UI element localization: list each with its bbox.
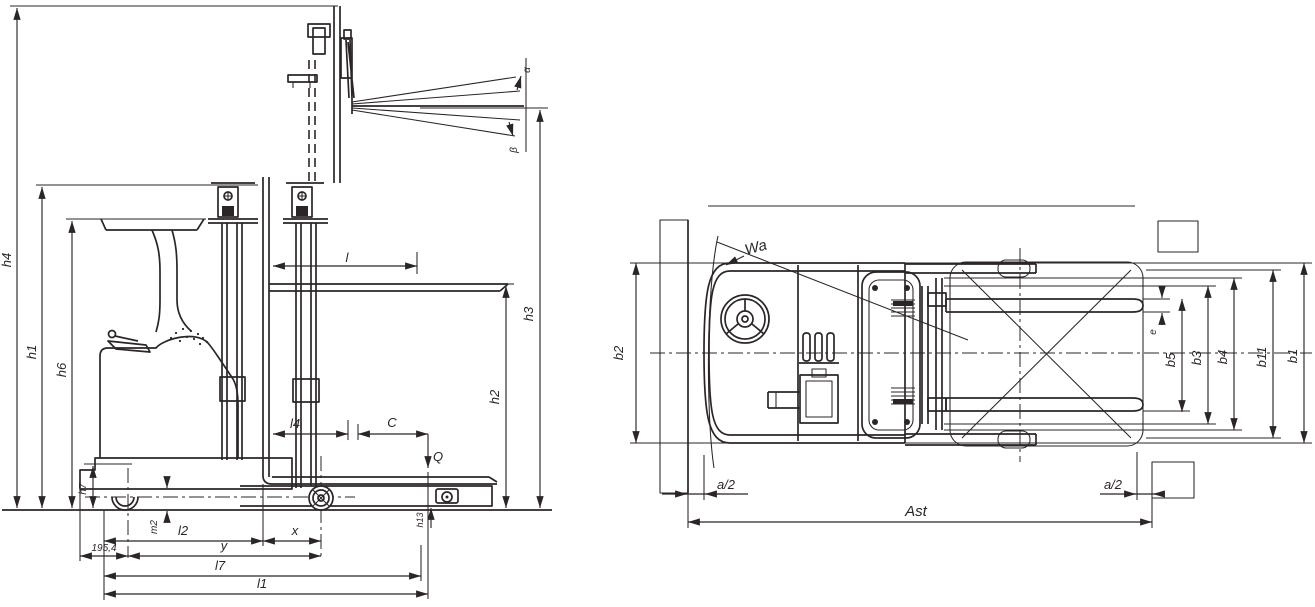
- dim-label-h3: h3: [521, 306, 536, 321]
- tilt-arrow-alpha: [517, 76, 521, 90]
- dim-label-l2: l2: [178, 523, 189, 538]
- dim-label-h2: h2: [487, 389, 502, 404]
- dim-label-h6: h6: [54, 362, 69, 377]
- dim-label-h1: h1: [24, 345, 39, 359]
- steering-knob: [109, 331, 116, 338]
- wall-hatch-left: [660, 220, 688, 493]
- fork-blade-free-lift: [269, 284, 508, 291]
- dim-label-rear-offset: 195,4: [91, 543, 116, 554]
- drive-unit-details: [768, 333, 839, 423]
- tilt-arrow-beta: [509, 122, 513, 136]
- dim-label-b5: b5: [1163, 352, 1178, 367]
- fork-raised-tilt-range: [346, 40, 524, 136]
- operator-body-outline: [100, 336, 238, 458]
- dim-label-b3: b3: [1189, 350, 1204, 365]
- dim-label-l7: l7: [215, 558, 226, 573]
- dim-label-h4: h4: [0, 253, 14, 267]
- height-dimensions: [17, 8, 540, 528]
- dim-label-m2: m2: [149, 520, 160, 534]
- pallet-load: [950, 262, 1143, 446]
- reach-carriage: [862, 272, 946, 438]
- dim-label-a2-left: a/2: [717, 477, 736, 492]
- forks-plan: [946, 299, 1143, 411]
- rack-hatch-bottom-right: [1152, 462, 1194, 498]
- load-cross: [962, 270, 1131, 438]
- wheel-arms-plan: [905, 260, 1036, 448]
- dim-label-h7: h7: [78, 483, 89, 495]
- dim-label-y: y: [220, 538, 229, 553]
- dim-label-l: l: [346, 250, 350, 265]
- dim-label-b2: b2: [611, 345, 626, 360]
- load-weight-label-q: Q: [433, 449, 443, 464]
- chassis: [80, 458, 292, 489]
- dim-label-b4: b4: [1215, 350, 1230, 364]
- drawing-canvas: h4 h1 h6 h7 m2 h2 h3 h13 α β l l4 C Q l2…: [0, 0, 1315, 607]
- dim-label-l4: l4: [290, 416, 300, 431]
- dim-label-a2-right: a/2: [1104, 477, 1123, 492]
- dim-label-e: e: [1148, 329, 1159, 335]
- tilt-angle-alpha-label: α: [522, 67, 533, 73]
- dim-label-wa: Wa: [743, 237, 769, 259]
- technical-drawing-reach-truck: h4 h1 h6 h7 m2 h2 h3 h13 α β l l4 C Q l2…: [0, 0, 1315, 607]
- load-wheel: [309, 486, 333, 510]
- steering-wheel: [721, 295, 769, 343]
- drive-wheel: [112, 497, 138, 510]
- fork-blade-lowered: [272, 477, 497, 484]
- mast-retracted: [208, 183, 258, 460]
- mast-raised: [308, 6, 352, 183]
- top-view: Wa b2 e b5 b3 b4 b11 b1 a/2 a/2 Ast: [611, 206, 1312, 528]
- overhead-guard: [101, 219, 208, 345]
- dim-label-l1: l1: [257, 576, 267, 591]
- tilt-angle-beta-label: β: [509, 147, 520, 154]
- dim-label-h13: h13: [415, 512, 425, 527]
- rack-hatch-top-right: [1158, 221, 1198, 252]
- caster-wheel: [436, 489, 458, 503]
- dim-label-b1: b1: [1285, 349, 1300, 363]
- dim-label-b11: b11: [1254, 347, 1269, 368]
- side-view: h4 h1 h6 h7 m2 h2 h3 h13 α β l l4 C Q l2…: [0, 6, 552, 600]
- dim-label-c: C: [387, 415, 397, 430]
- dim-label-ast: Ast: [904, 503, 928, 520]
- length-dimensions: [80, 266, 428, 594]
- dim-label-x: x: [291, 523, 299, 538]
